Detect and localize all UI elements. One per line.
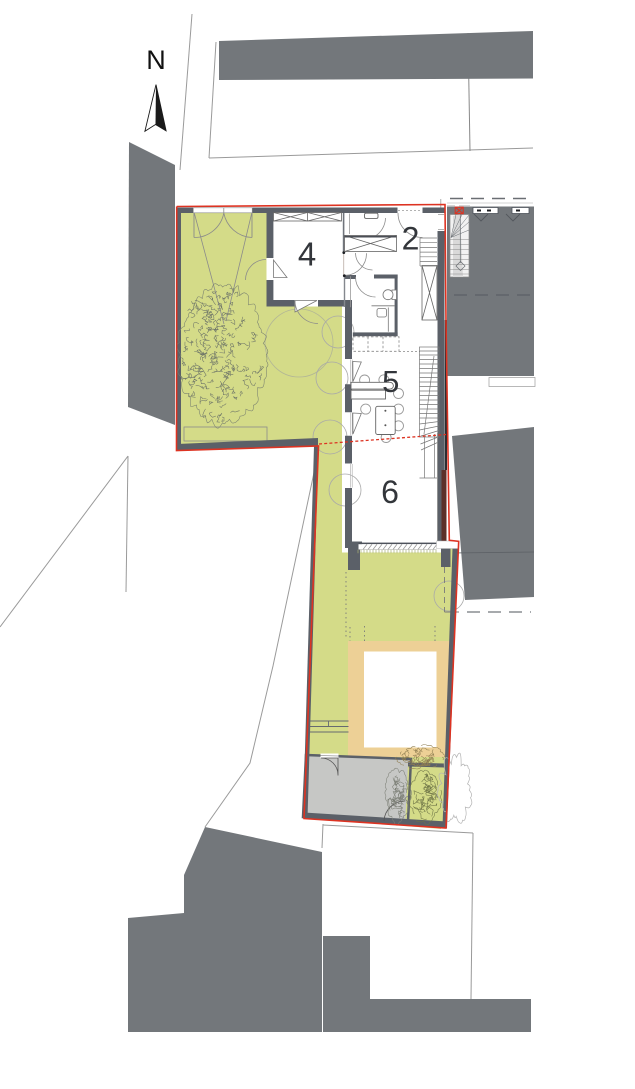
svg-text:6: 6: [381, 474, 399, 510]
svg-text:5: 5: [382, 364, 399, 399]
svg-text:N: N: [146, 45, 166, 75]
svg-text:2: 2: [402, 221, 420, 257]
svg-text:4: 4: [298, 236, 316, 273]
